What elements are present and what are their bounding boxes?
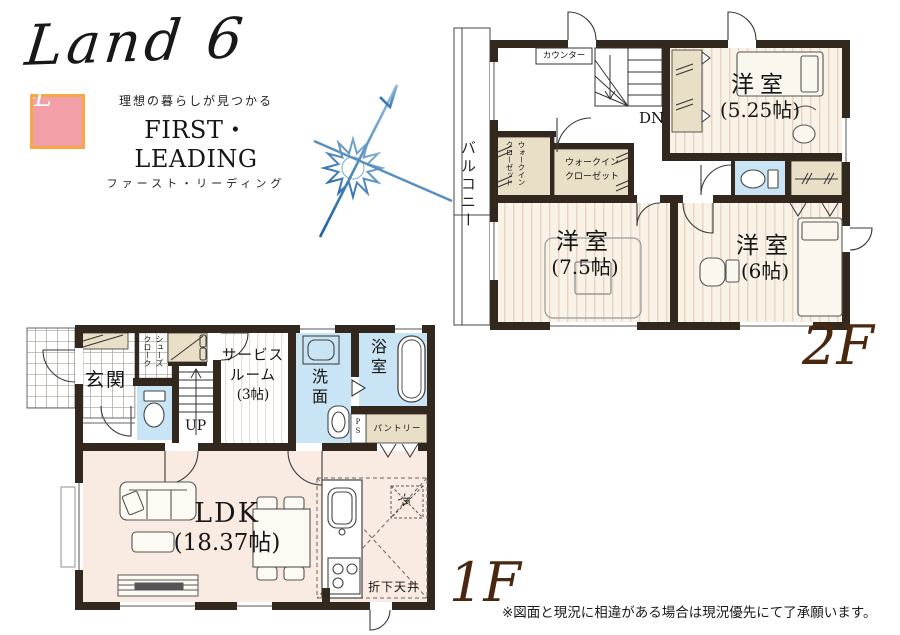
label-lowered-ceiling: 折下天井 (368, 578, 426, 595)
tv-board-icon (118, 575, 198, 596)
label-counter: カウンター (537, 49, 591, 64)
label-stairs-up: UP (185, 418, 206, 434)
label-pipe-space: PS (354, 418, 362, 436)
shoe-closet-col-left: クローク (142, 335, 153, 377)
brand-name-jp: ファースト・リーディング (88, 175, 304, 191)
label-washroom: 洗面 (306, 368, 330, 408)
toilet-icon-1f (144, 391, 165, 427)
wic1-col-left: クローゼット (504, 141, 515, 197)
logo-inner-frame: FL (33, 97, 35, 99)
kitchen-wall-stub (322, 588, 330, 602)
brand-tagline: 理想の暮らしが見つかる (88, 92, 304, 109)
label-service-room: サービス ルーム (3帖) (215, 347, 291, 404)
bathtub-icon (398, 336, 425, 402)
label-bathroom: 浴室 (365, 338, 389, 378)
label-room-6: 洋室 (6帖) (690, 233, 840, 284)
sink-icon (328, 406, 349, 438)
logo-monogram: FL (15, 83, 52, 113)
wic1-col-right: ウォークイン (516, 141, 527, 197)
label-stairs-dn: DN (639, 109, 664, 127)
label-entrance: 玄関 (77, 365, 135, 392)
brand-title: Land 6 (22, 6, 250, 79)
compass-icon (312, 75, 457, 250)
label-shoe-closet: シューズ クローク (142, 335, 165, 377)
brand-name-en: FIRST・LEADING (88, 110, 304, 173)
label-room-525: 洋室 (5.25帖) (685, 72, 835, 123)
label-walkin-closet-2: ウォークイン クローゼット (556, 156, 628, 185)
label-room-75: 洋室 (7.5帖) (510, 229, 660, 280)
floor-label-2f: 2F (802, 314, 874, 377)
porch-tiles (27, 328, 75, 408)
toilet-icon-2f (741, 170, 778, 188)
label-ldk: LDK (18.37帖) (148, 498, 306, 557)
brand-text-block: 理想の暮らしが見つかる FIRST・LEADING ファースト・リーディング (88, 92, 304, 191)
label-balcony: バルコニー (458, 140, 479, 230)
label-walkin-closet-1: ウォークイン クローゼット (504, 141, 527, 197)
disclaimer-note: ※図面と現況に相違がある場合は現況優先にて了承願います。 (502, 601, 876, 621)
label-pantry: パントリー (368, 422, 427, 434)
floor-plan-1f: 玄関 シューズ クローク UP サービス ルーム (3帖) 洗面 浴室 PS パ… (25, 320, 445, 635)
shoe-closet-col-right: シューズ (154, 335, 165, 377)
floorplan-flyer: Land 6 FL 理想の暮らしが見つかる FIRST・LEADING ファース… (0, 0, 900, 635)
